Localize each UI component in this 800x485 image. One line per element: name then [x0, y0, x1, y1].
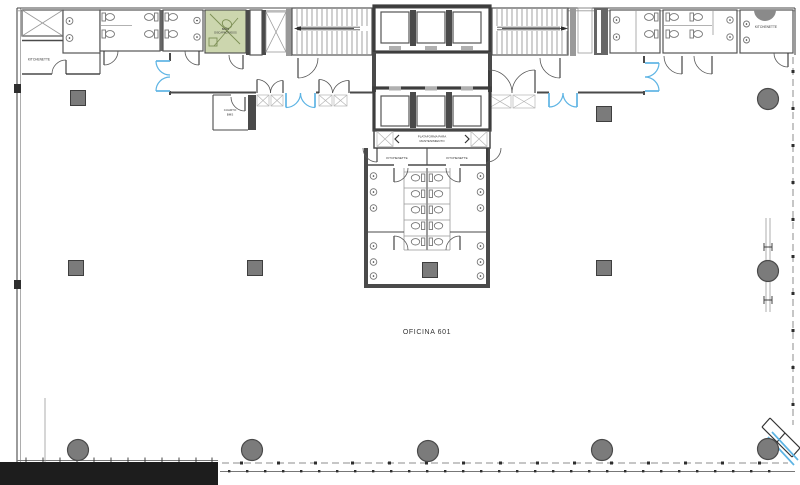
floor-plan-drawing: KITCHENETTE BAÑO DISCAPACITADOS: [0, 0, 800, 485]
round-column: [758, 439, 779, 460]
storage-xbox: [22, 10, 63, 41]
label-accessible-wc-2: DISCAPACITADOS: [214, 31, 237, 35]
restroom-right-2: [663, 10, 737, 74]
beam-section-marker: [764, 296, 772, 304]
kitchenette-room-right: KITCHENETTE: [740, 10, 793, 67]
label-platform-1: PLATAFORMA PARA: [418, 135, 447, 139]
door-arc: [52, 60, 66, 74]
service-shaft-right: [570, 8, 608, 56]
label-platform-2: MANTENIMIENTO: [419, 139, 445, 143]
double-door-blue-B: [286, 93, 315, 108]
label-kitchenette-top-right: KITCHENETTE: [755, 25, 777, 29]
stair-left: [292, 8, 372, 55]
kitchenette-room-left: KITCHENETTE: [22, 53, 100, 74]
double-door-blue-F: [644, 56, 659, 95]
double-door-black-D: [489, 70, 535, 108]
elevator-car: [453, 96, 481, 126]
band-ticks: [26, 458, 212, 463]
door-arc: [694, 56, 712, 74]
platform-arrow-left: [395, 135, 399, 143]
service-shaft-left: [246, 8, 292, 56]
label-kitchenette-top-left: KITCHENETTE: [28, 58, 50, 62]
square-column: [69, 261, 84, 276]
door-arc: [229, 55, 243, 69]
columns-layer: [68, 89, 779, 462]
round-column: [758, 89, 779, 110]
elevator-bank-lower: [374, 87, 490, 131]
double-door-black-A: [257, 80, 283, 107]
restroom-right-1: [610, 10, 660, 53]
accessible-bathroom: BAÑO DISCAPACITADOS: [205, 10, 246, 69]
label-bms-1: CUARTO: [224, 108, 237, 112]
square-column: [248, 261, 263, 276]
round-column: [242, 440, 263, 461]
floor-plan-canvas: KITCHENETTE BAÑO DISCAPACITADOS: [0, 0, 800, 485]
restroom-left-1: [100, 10, 160, 65]
square-column: [423, 263, 438, 278]
sink-room-left: [63, 10, 100, 53]
wall-marker: [14, 280, 21, 289]
double-door-blue-G: [156, 53, 170, 95]
site-boundary: [0, 8, 795, 485]
label-office-name: OFICINA 601: [403, 329, 451, 336]
round-column: [592, 440, 613, 461]
solid-wall-band: [0, 462, 218, 485]
label-bms-2: BMS: [227, 113, 234, 117]
elevator-bank-top: [374, 6, 490, 52]
door-arc: [774, 53, 788, 67]
door-arc: [664, 56, 682, 74]
facade-bottom-dots: [240, 462, 761, 465]
door-arc: [104, 51, 118, 65]
square-column: [597, 261, 612, 276]
stair-right: [492, 8, 568, 55]
wall-marker: [14, 84, 21, 93]
label-kitchenette-core-right: KITCHENETTE: [446, 156, 468, 160]
square-column: [71, 91, 86, 106]
maintenance-platform-room: PLATAFORMA PARA MANTENIMIENTO: [374, 130, 490, 148]
bms-room: CUARTO BMS: [213, 95, 256, 130]
double-door-blue-E: [549, 93, 577, 107]
elevator-car: [453, 12, 481, 43]
restroom-left-2: [160, 10, 203, 65]
double-door-black-C: [319, 80, 349, 107]
square-column: [597, 107, 612, 122]
label-kitchenette-core-left: KITCHENETTE: [386, 156, 408, 160]
elevator-car: [417, 12, 445, 43]
elevator-car: [381, 12, 409, 43]
platform-arrow-right: [465, 135, 469, 143]
round-column: [418, 441, 439, 462]
door-arc: [185, 51, 199, 65]
round-column: [758, 261, 779, 282]
beam-section-marker: [764, 243, 772, 251]
elevator-car: [381, 96, 409, 126]
round-column: [68, 440, 89, 461]
elevator-car: [417, 96, 445, 126]
